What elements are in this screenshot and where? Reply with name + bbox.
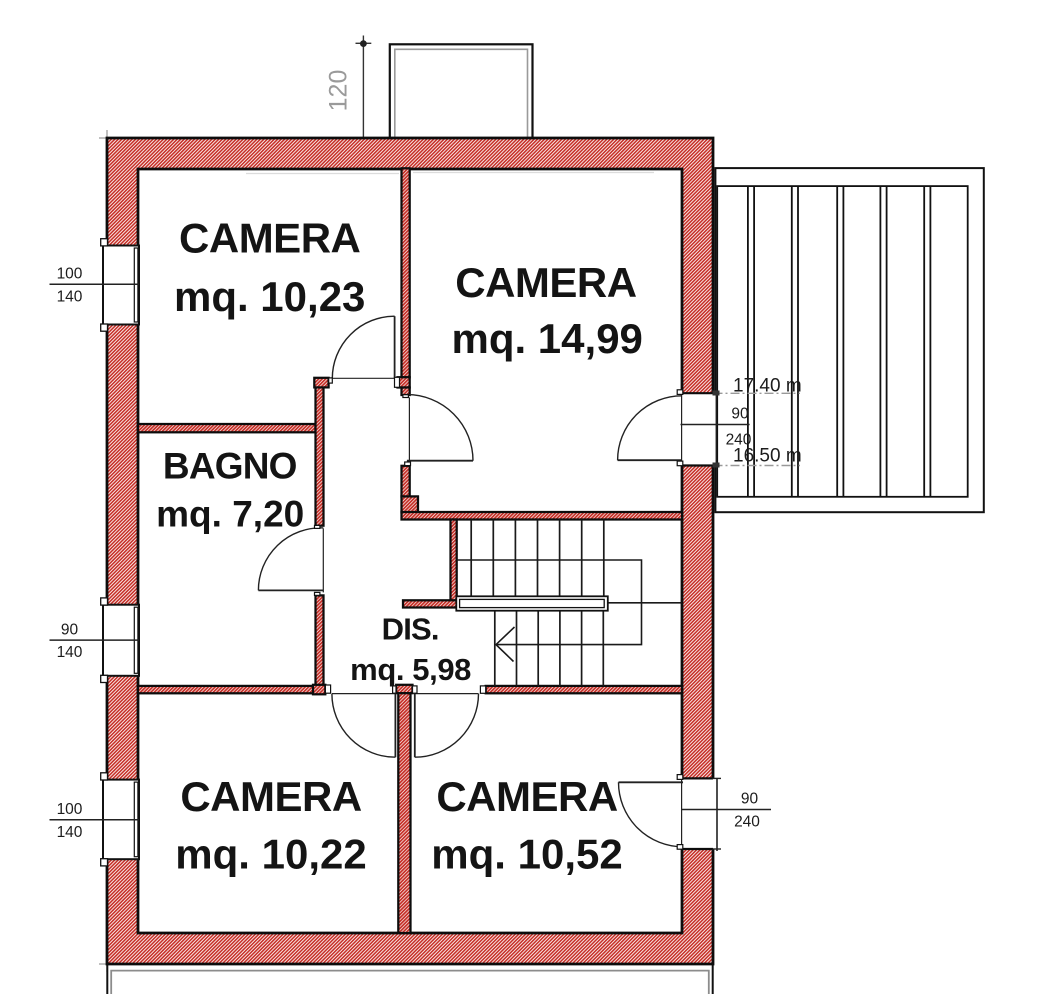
svg-text:16.50 m: 16.50 m <box>733 446 802 467</box>
svg-text:CAMERA: CAMERA <box>179 215 360 262</box>
svg-text:BAGNO: BAGNO <box>163 445 297 486</box>
svg-text:120: 120 <box>325 70 353 112</box>
svg-text:240: 240 <box>734 814 760 831</box>
svg-text:DIS.: DIS. <box>382 612 439 647</box>
svg-text:140: 140 <box>57 288 83 305</box>
svg-text:90: 90 <box>61 621 79 638</box>
svg-text:mq. 7,20: mq. 7,20 <box>156 494 304 535</box>
svg-text:mq. 10,52: mq. 10,52 <box>431 831 622 878</box>
svg-text:CAMERA: CAMERA <box>436 773 617 820</box>
svg-text:mq. 5,98: mq. 5,98 <box>350 652 471 687</box>
svg-text:mq. 10,23: mq. 10,23 <box>174 273 365 320</box>
svg-text:90: 90 <box>741 791 759 808</box>
svg-text:140: 140 <box>57 644 83 661</box>
svg-text:90: 90 <box>731 406 749 423</box>
svg-text:100: 100 <box>57 801 83 818</box>
svg-text:mq. 10,22: mq. 10,22 <box>175 831 366 878</box>
svg-text:100: 100 <box>57 266 83 283</box>
svg-text:mq. 14,99: mq. 14,99 <box>451 315 642 362</box>
svg-text:CAMERA: CAMERA <box>455 259 636 306</box>
svg-text:140: 140 <box>57 824 83 841</box>
svg-text:CAMERA: CAMERA <box>180 773 361 820</box>
